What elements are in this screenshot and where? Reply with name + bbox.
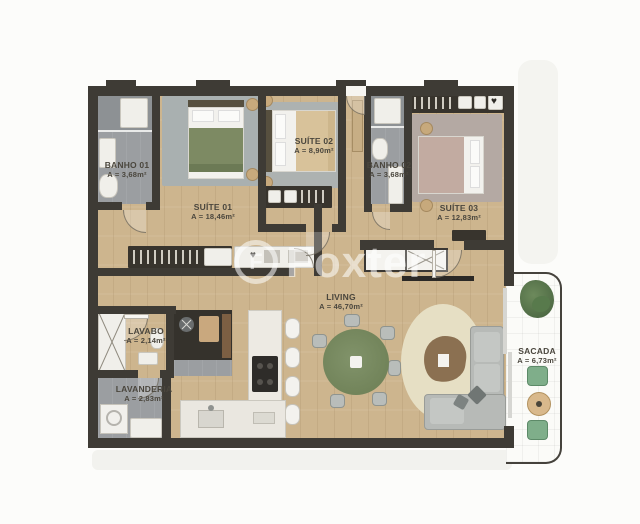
room-label-lavanderia: LAVANDERIA A = 2,83m² [104,384,184,404]
wall-suite01-suite02 [258,96,266,232]
room-label-suite03: SUÍTE 03 A = 12,83m² [424,203,494,223]
suite02-wardrobe-hangers [301,190,328,203]
room-area: A = 3,68m² [92,170,162,180]
dining-chair [330,394,345,408]
island-stool [285,347,300,368]
room-label-banho01: BANHO 01 A = 3,68m² [92,160,162,180]
wall-bottom [88,438,514,448]
coffee-table-book [438,354,449,367]
kitchen-sink-round [179,317,194,332]
suite03-wardrobe-hangers [414,97,454,109]
heart-icon: ♥ [491,97,497,107]
lavabo-basin [138,352,158,365]
banho01-shower-tray [120,98,148,128]
room-label-lavabo: LAVABO A = 2,14m² [111,326,181,346]
room-area: A = 2,14m² [111,336,181,346]
wall-living-north-b [464,240,504,250]
room-area: A = 18,46m² [178,212,248,222]
dining-chair [312,334,327,348]
foxter-watermark: Foxter [286,238,426,288]
lavanderia-counter [130,418,162,438]
washing-machine-door [106,410,122,426]
wall-lavanderia-top-a [96,370,138,378]
back-counter-sink [198,410,224,428]
dining-chair [372,392,387,406]
suite03-wardrobe-box [474,96,486,109]
wall-banho01-bottom-a [96,202,122,210]
dining-centerpiece [350,356,362,368]
wall-left [88,86,98,448]
room-label-suite01: SUÍTE 01 A = 18,46m² [178,202,248,222]
suite02-wardrobe-drawer [284,190,297,203]
room-name: LAVANDERIA [104,384,184,394]
foxter-monogram: F [249,249,262,275]
room-area: A = 6,73m² [508,356,566,366]
room-area: A = 12,83m² [424,213,494,223]
room-area: A = 46,70m² [306,302,376,312]
room-name: BANHO 01 [92,160,162,170]
room-name: SUÍTE 03 [424,203,494,213]
suite03-door-leaf [432,250,436,278]
dining-chair [380,326,395,340]
kitchen-cutting-board [199,316,219,342]
wall-banho01-bottom-b [146,202,160,210]
dining-chair [388,360,401,376]
banho02-shower-tray [374,98,401,124]
entry-door-gap [346,86,366,96]
room-area: A = 2,83m² [104,394,184,404]
suite02-wardrobe-drawer [268,190,281,203]
balcony-slider-panel [508,352,512,418]
wall-lavanderia-top-b [160,370,170,378]
room-name: SUÍTE 01 [178,202,248,212]
room-label-banho02: BANHO 02 A = 3,68m² [354,160,424,180]
banho01-shower-glass [98,130,152,132]
room-label-suite02: SUÍTE 02 A = 8,90m² [279,136,349,156]
lavabo-door-leaf [124,314,149,319]
wall-top [88,86,514,96]
room-area: A = 8,90m² [279,146,349,156]
wall-banho02-left [364,96,371,212]
suite03-pillow [470,166,480,188]
balcony-slider-panel [503,288,507,354]
kitchen-spice-shelf [222,314,231,358]
suite03-blanket [419,137,464,193]
sofa-cushion [474,332,500,362]
suite01-blanket-fold [189,164,243,172]
sacada-chair [527,420,548,440]
suite01-closet-hangers [133,250,199,264]
island-stool [285,376,300,397]
wall-suite02-bottom-a [266,224,306,232]
room-area: A = 3,68m² [354,170,424,180]
suite03-wardrobe-box [458,96,472,109]
room-name: SUÍTE 02 [279,136,349,146]
island-sink [253,412,275,424]
room-label-living: LIVING A = 46,70m² [306,292,376,312]
foxter-logo-icon: F [234,240,278,284]
wall-banho02-right [404,96,412,212]
wall-lavabo-top [96,306,176,314]
sacada-chair [527,366,548,386]
floor-plan: ♥ ♥ [0,0,640,524]
suite01-dresser [204,248,232,266]
dining-chair [344,314,360,327]
suite01-pillow [192,110,214,122]
island-stool [285,318,300,339]
room-name: LIVING [306,292,376,302]
banho02-toilet [372,138,388,160]
suite01-bed-headboard [188,100,244,107]
room-name: LAVABO [111,326,181,336]
banho02-shower-glass [371,126,404,128]
sacada-table-center [536,401,542,407]
wall-right-lower [504,426,514,448]
suite03-pillow [470,140,480,164]
room-label-sacada: SACADA A = 6,73m² [508,346,566,366]
room-name: BANHO 02 [354,160,424,170]
wall-banho02-bottom-a [364,204,372,212]
suite01-pillow [218,110,240,122]
wall-right-upper [504,86,514,286]
island-cooktop [252,356,278,392]
neighbor-balcony-strip [518,60,558,264]
wall-banho01-right [152,96,160,206]
ground-shadow [92,450,512,470]
room-name: SACADA [508,346,566,356]
island-stool [285,404,300,425]
suite03-nightstand [420,122,433,135]
wall-suite02-right [338,96,346,232]
back-counter-faucet [208,405,214,411]
